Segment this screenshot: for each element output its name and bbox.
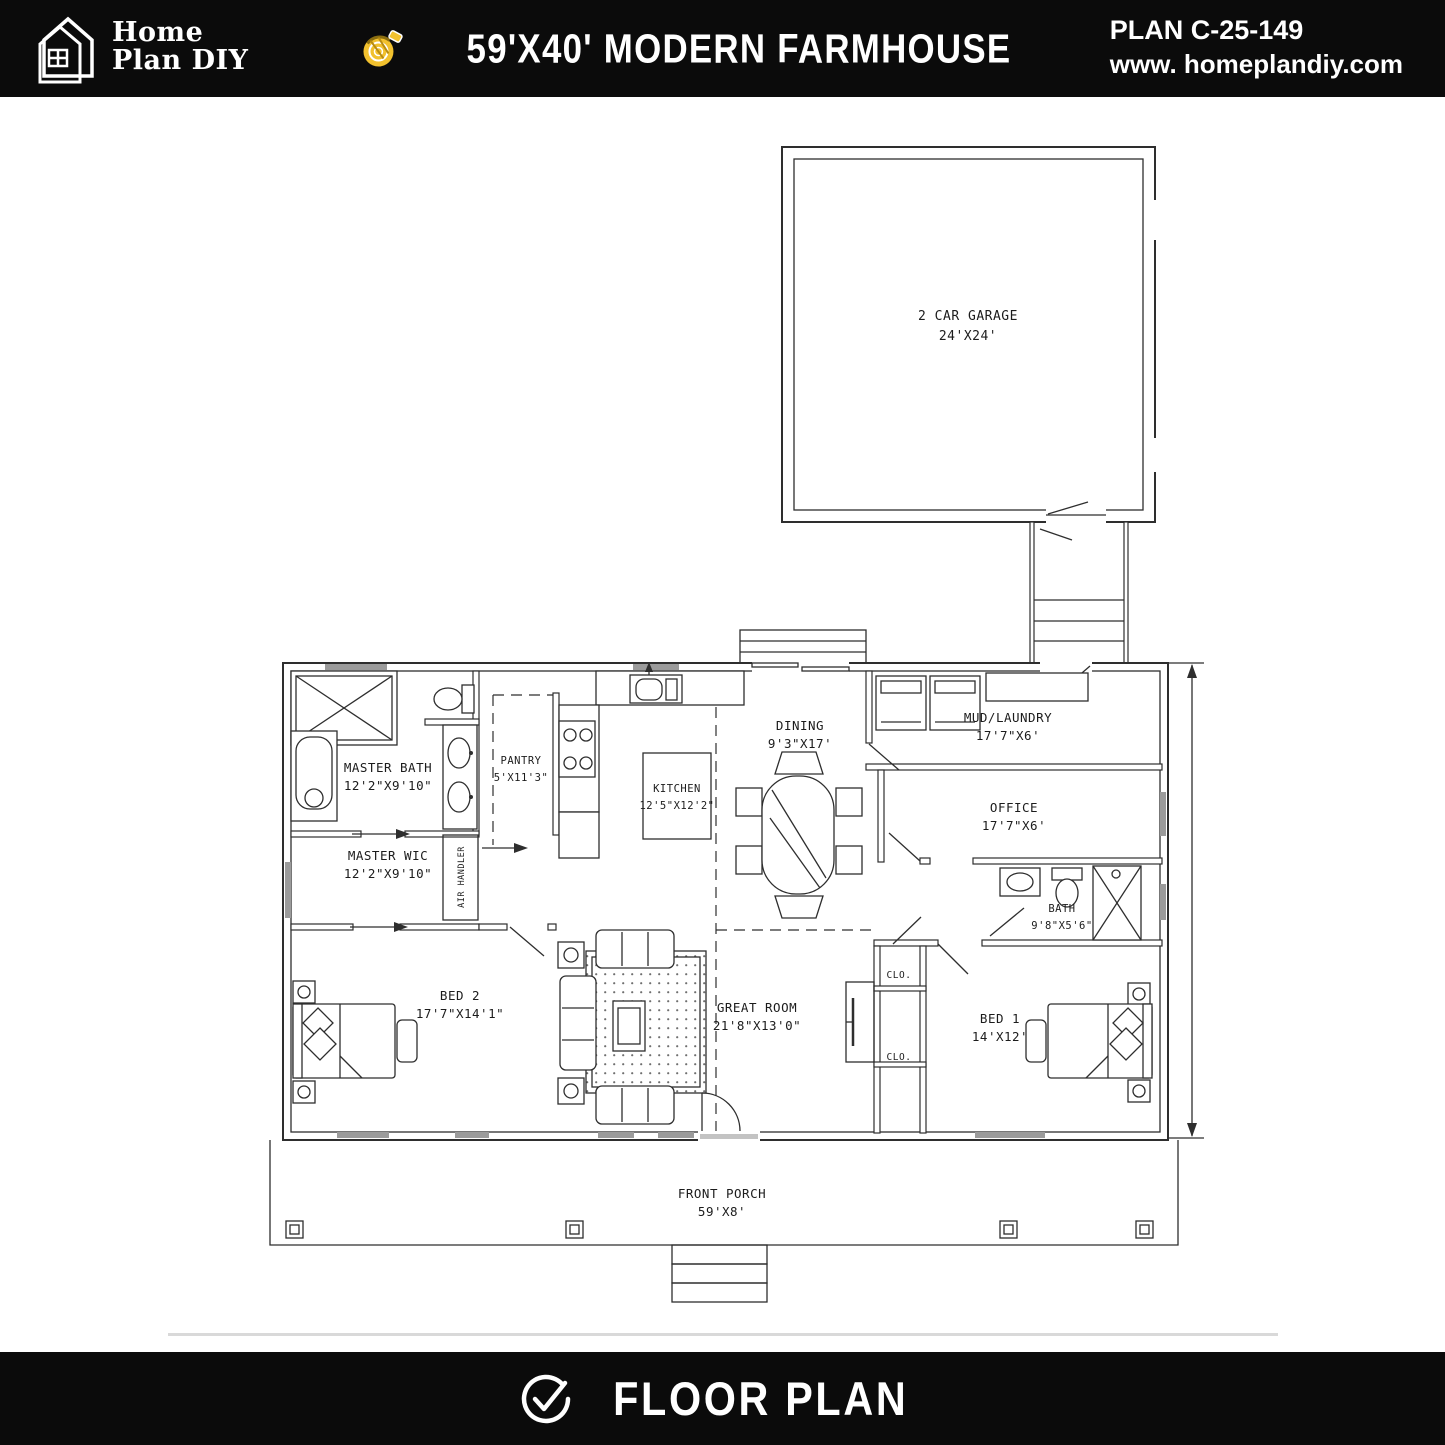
page: 2 CAR GARAGE 24'X24' MASTER BATH 12'2"X9… — [0, 0, 1445, 1445]
room-label-dining: DINING — [776, 718, 824, 733]
logo-line2: Plan DIY — [112, 47, 248, 75]
room-label-closet-top: CLO. — [887, 970, 912, 981]
room-label-great-room: GREAT ROOM — [717, 1000, 797, 1015]
dimension-line — [1168, 663, 1204, 1138]
room-label-pantry: PANTRY — [501, 755, 542, 767]
dining-table — [736, 752, 862, 918]
page-title-text: 59'X40' MODERN FARMHOUSE — [466, 25, 1011, 72]
bed1-furniture — [1026, 983, 1152, 1102]
room-dims-dining: 9'3"X17' — [768, 736, 832, 751]
plan-number: PLAN C-25-149 — [1110, 13, 1403, 48]
room-label-garage: 2 CAR GARAGE — [918, 309, 1018, 324]
room-label-bath: BATH — [1048, 903, 1075, 915]
room-dims-bed1: 14'X12' — [972, 1029, 1028, 1044]
room-label-office: OFFICE — [990, 800, 1038, 815]
breezeway — [1030, 522, 1128, 663]
bed2-furniture — [293, 981, 417, 1103]
room-dims-mud-laundry: 17'7"X6' — [976, 728, 1040, 743]
footer-bar: FLOOR PLAN — [0, 1352, 1445, 1445]
page-title: 59'X40' MODERN FARMHOUSE — [358, 25, 1059, 72]
room-label-master-wic: MASTER WIC — [348, 848, 428, 863]
footer-divider — [168, 1333, 1278, 1336]
room-label-kitchen: KITCHEN — [653, 783, 701, 795]
header-bar: Home Plan DIY 59'X40' MODERN FARMHOUSE P… — [0, 0, 1445, 97]
kitchen-fixtures — [559, 662, 744, 858]
room-label-front-porch: FRONT PORCH — [678, 1186, 766, 1201]
room-dims-pantry: 5'X11'3" — [494, 772, 549, 784]
front-porch — [270, 1140, 1178, 1302]
room-label-mud-laundry: MUD/LAUNDRY — [964, 710, 1052, 725]
room-label-bed2: BED 2 — [440, 988, 480, 1003]
footer-title: FLOOR PLAN — [613, 1371, 908, 1426]
room-label-air-handler: AIR HANDLER — [457, 846, 467, 908]
room-dims-garage: 24'X24' — [939, 329, 997, 344]
room-dims-kitchen: 12'5"X12'2" — [639, 800, 714, 812]
back-steps — [740, 630, 866, 663]
room-label-bed1: BED 1 — [980, 1011, 1020, 1026]
room-label-master-bath: MASTER BATH — [344, 760, 432, 775]
website-link[interactable]: www. homeplandiy.com — [1110, 48, 1403, 82]
great-room-furniture — [558, 930, 706, 1124]
logo-text: Home Plan DIY — [112, 19, 248, 76]
room-label-closet-bottom: CLO. — [887, 1052, 912, 1063]
house-outline-icon — [30, 10, 100, 84]
room-dims-front-porch: 59'X8' — [698, 1204, 746, 1219]
room-dims-master-bath: 12'2"X9'10" — [344, 778, 432, 793]
logo: Home Plan DIY — [30, 10, 248, 84]
room-dims-great-room: 21'8"X13'0" — [713, 1018, 801, 1033]
plan-info: PLAN C-25-149 www. homeplandiy.com — [1110, 13, 1403, 82]
check-circle-icon — [517, 1370, 575, 1428]
tape-measure-icon — [358, 26, 404, 72]
room-dims-bed2: 17'7"X14'1" — [416, 1006, 504, 1021]
room-dims-office: 17'7"X6' — [982, 818, 1046, 833]
logo-line1: Home — [112, 19, 248, 47]
room-dims-master-wic: 12'2"X9'10" — [344, 866, 432, 881]
master-bath-fixtures — [291, 671, 477, 829]
room-dims-bath: 9'8"X5'6" — [1031, 920, 1092, 932]
floor-plan-drawing: 2 CAR GARAGE 24'X24' MASTER BATH 12'2"X9… — [0, 0, 1445, 1445]
